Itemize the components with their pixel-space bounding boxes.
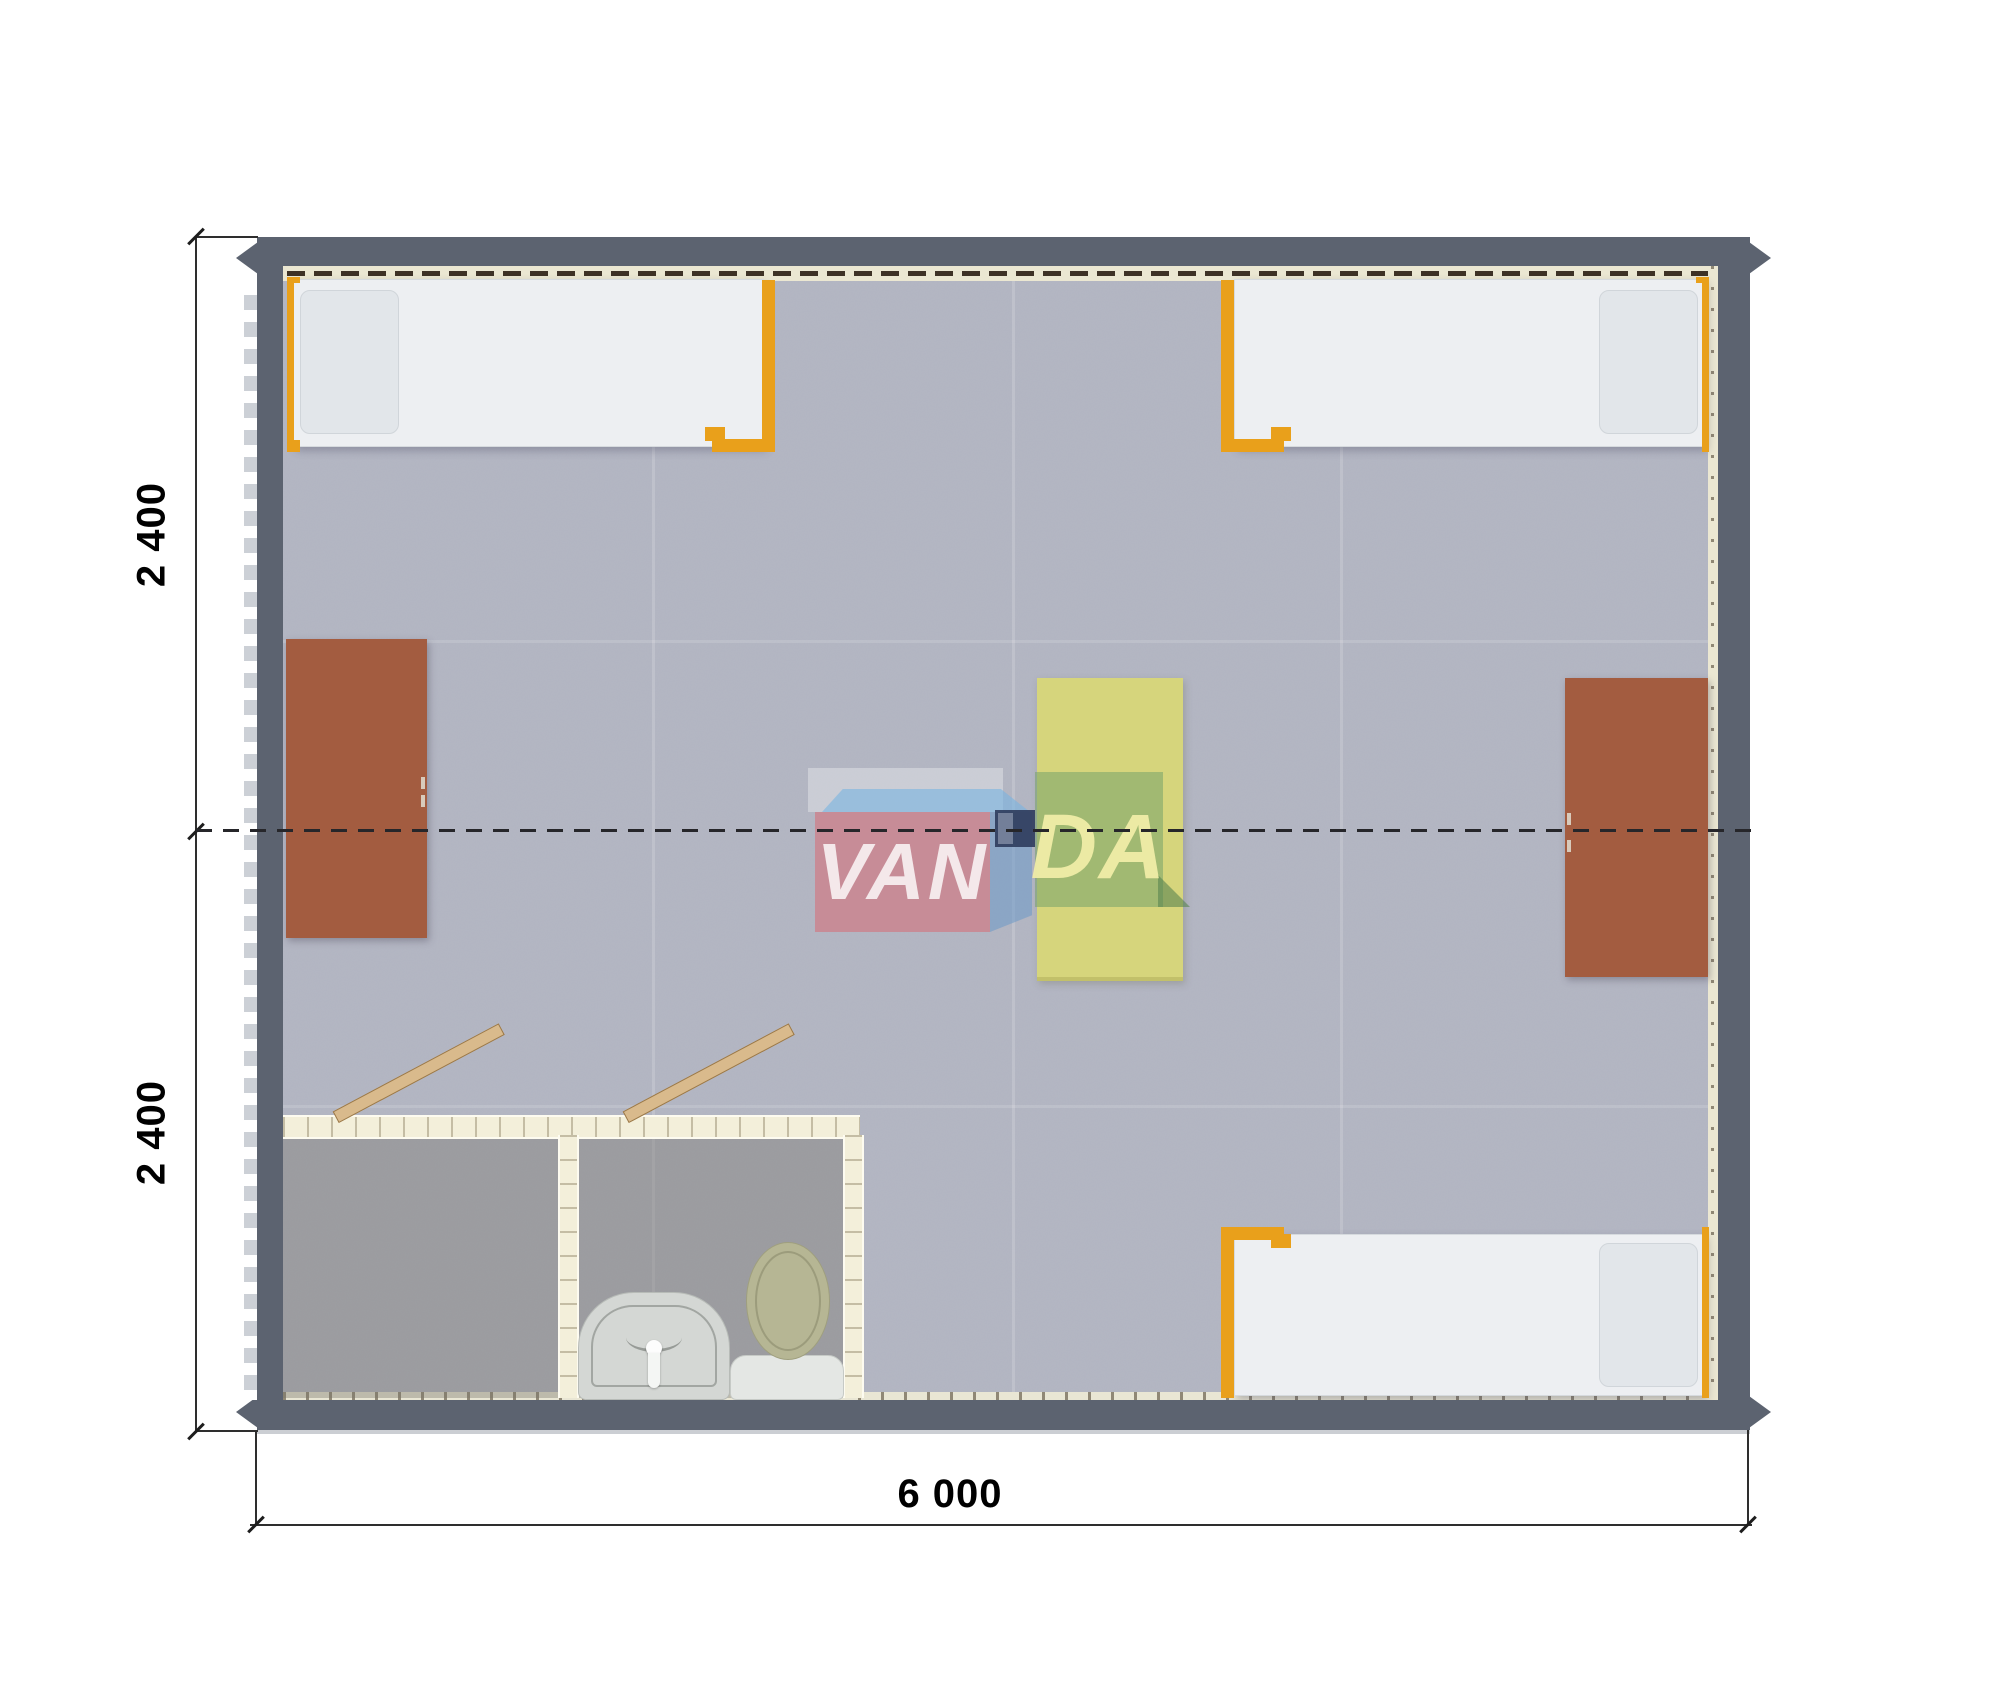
sink	[578, 1292, 730, 1400]
corner-arrow-top-right	[1749, 242, 1771, 274]
vanda-watermark: VAN DA	[805, 763, 1205, 923]
corner-arrow-top-left	[236, 242, 258, 274]
bathroom-wall-right	[843, 1135, 864, 1398]
pillow	[300, 290, 399, 434]
dimension-line-horizontal	[250, 1524, 1752, 1526]
desk-handle	[421, 777, 425, 789]
corner-arrow-bottom-left	[236, 1396, 258, 1428]
bed-bottom-right	[1221, 1227, 1709, 1398]
center-axis-dashed-line	[196, 829, 1752, 832]
pillow	[1599, 1243, 1698, 1387]
bed-top-right	[1221, 277, 1709, 452]
bathroom-left-room-floor	[283, 1135, 558, 1398]
bed-frame-rail	[287, 277, 294, 452]
exterior-cladding-marks	[244, 283, 257, 1400]
floor-plan-page: 2 400 2 400 6 000 VAN DA	[0, 0, 2000, 1701]
bed-frame-corner	[1696, 277, 1709, 283]
corner-arrow-bottom-right	[1749, 1396, 1771, 1428]
bed-frame-rail	[1702, 277, 1709, 452]
watermark-cube-top	[822, 789, 1030, 812]
watermark-text-da: DA	[1035, 780, 1163, 915]
desk-right	[1565, 678, 1708, 977]
pillow	[1599, 290, 1698, 434]
extension-line	[1747, 1430, 1749, 1526]
bed-frame-corner	[1271, 427, 1291, 441]
bed-frame-rail	[1221, 1232, 1234, 1398]
dimension-label-left-bottom: 2 400	[130, 1033, 175, 1233]
bed-frame-rail	[1221, 280, 1234, 447]
faucet-stem	[648, 1353, 660, 1388]
desk-handle	[1567, 840, 1571, 852]
dimension-label-left-top: 2 400	[130, 435, 175, 635]
toilet-lid-rim	[755, 1251, 821, 1351]
desk-handle	[1567, 813, 1571, 825]
extension-line	[196, 1430, 258, 1432]
extension-line	[196, 236, 258, 238]
toilet-lid	[746, 1242, 830, 1360]
toilet	[730, 1355, 844, 1400]
dimension-label-bottom: 6 000	[850, 1472, 1050, 1517]
bed-frame-rail	[762, 280, 775, 447]
bathroom-wall-middle	[558, 1135, 579, 1398]
extension-line	[255, 1432, 257, 1526]
right-wall-lining	[1708, 266, 1718, 1400]
bed-top-left	[287, 277, 775, 452]
carpet-seam	[283, 640, 1708, 643]
window-glass-line	[287, 271, 1710, 276]
bed-frame-corner	[1271, 1234, 1291, 1248]
bed-frame-rail	[1702, 1227, 1709, 1398]
desk-handle	[421, 795, 425, 807]
bed-frame-corner	[287, 277, 300, 283]
bed-frame-corner	[287, 440, 300, 452]
desk-left	[286, 639, 427, 938]
carpet-seam	[283, 1105, 1708, 1108]
bed-frame-corner	[705, 427, 725, 441]
